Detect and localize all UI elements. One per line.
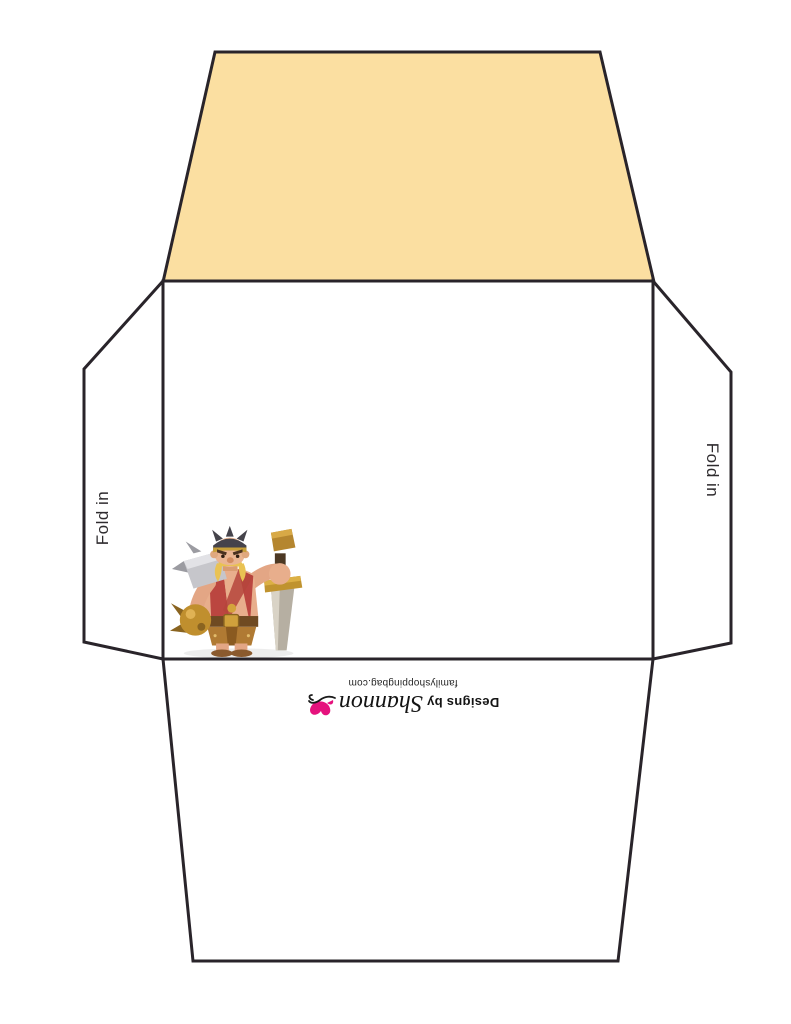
- envelope-template: [0, 0, 791, 1024]
- top-flap: [163, 52, 654, 282]
- fold-in-label-left: Fold in: [91, 472, 115, 564]
- brand-script-name: Shannon: [339, 690, 423, 716]
- printable-sheet: Fold in Fold in Designs by Shannon famil…: [0, 0, 791, 1024]
- fold-in-label-right: Fold in: [700, 424, 724, 516]
- brand-logo: Designs by Shannon familyshoppingbag.com: [303, 661, 503, 719]
- brand-prefix: Designs by: [427, 696, 499, 711]
- left-flap: [84, 281, 163, 659]
- brand-website: familyshoppingbag.com: [348, 677, 457, 688]
- butterfly-icon: [307, 694, 337, 720]
- brand-name-line: Designs by Shannon: [307, 687, 499, 719]
